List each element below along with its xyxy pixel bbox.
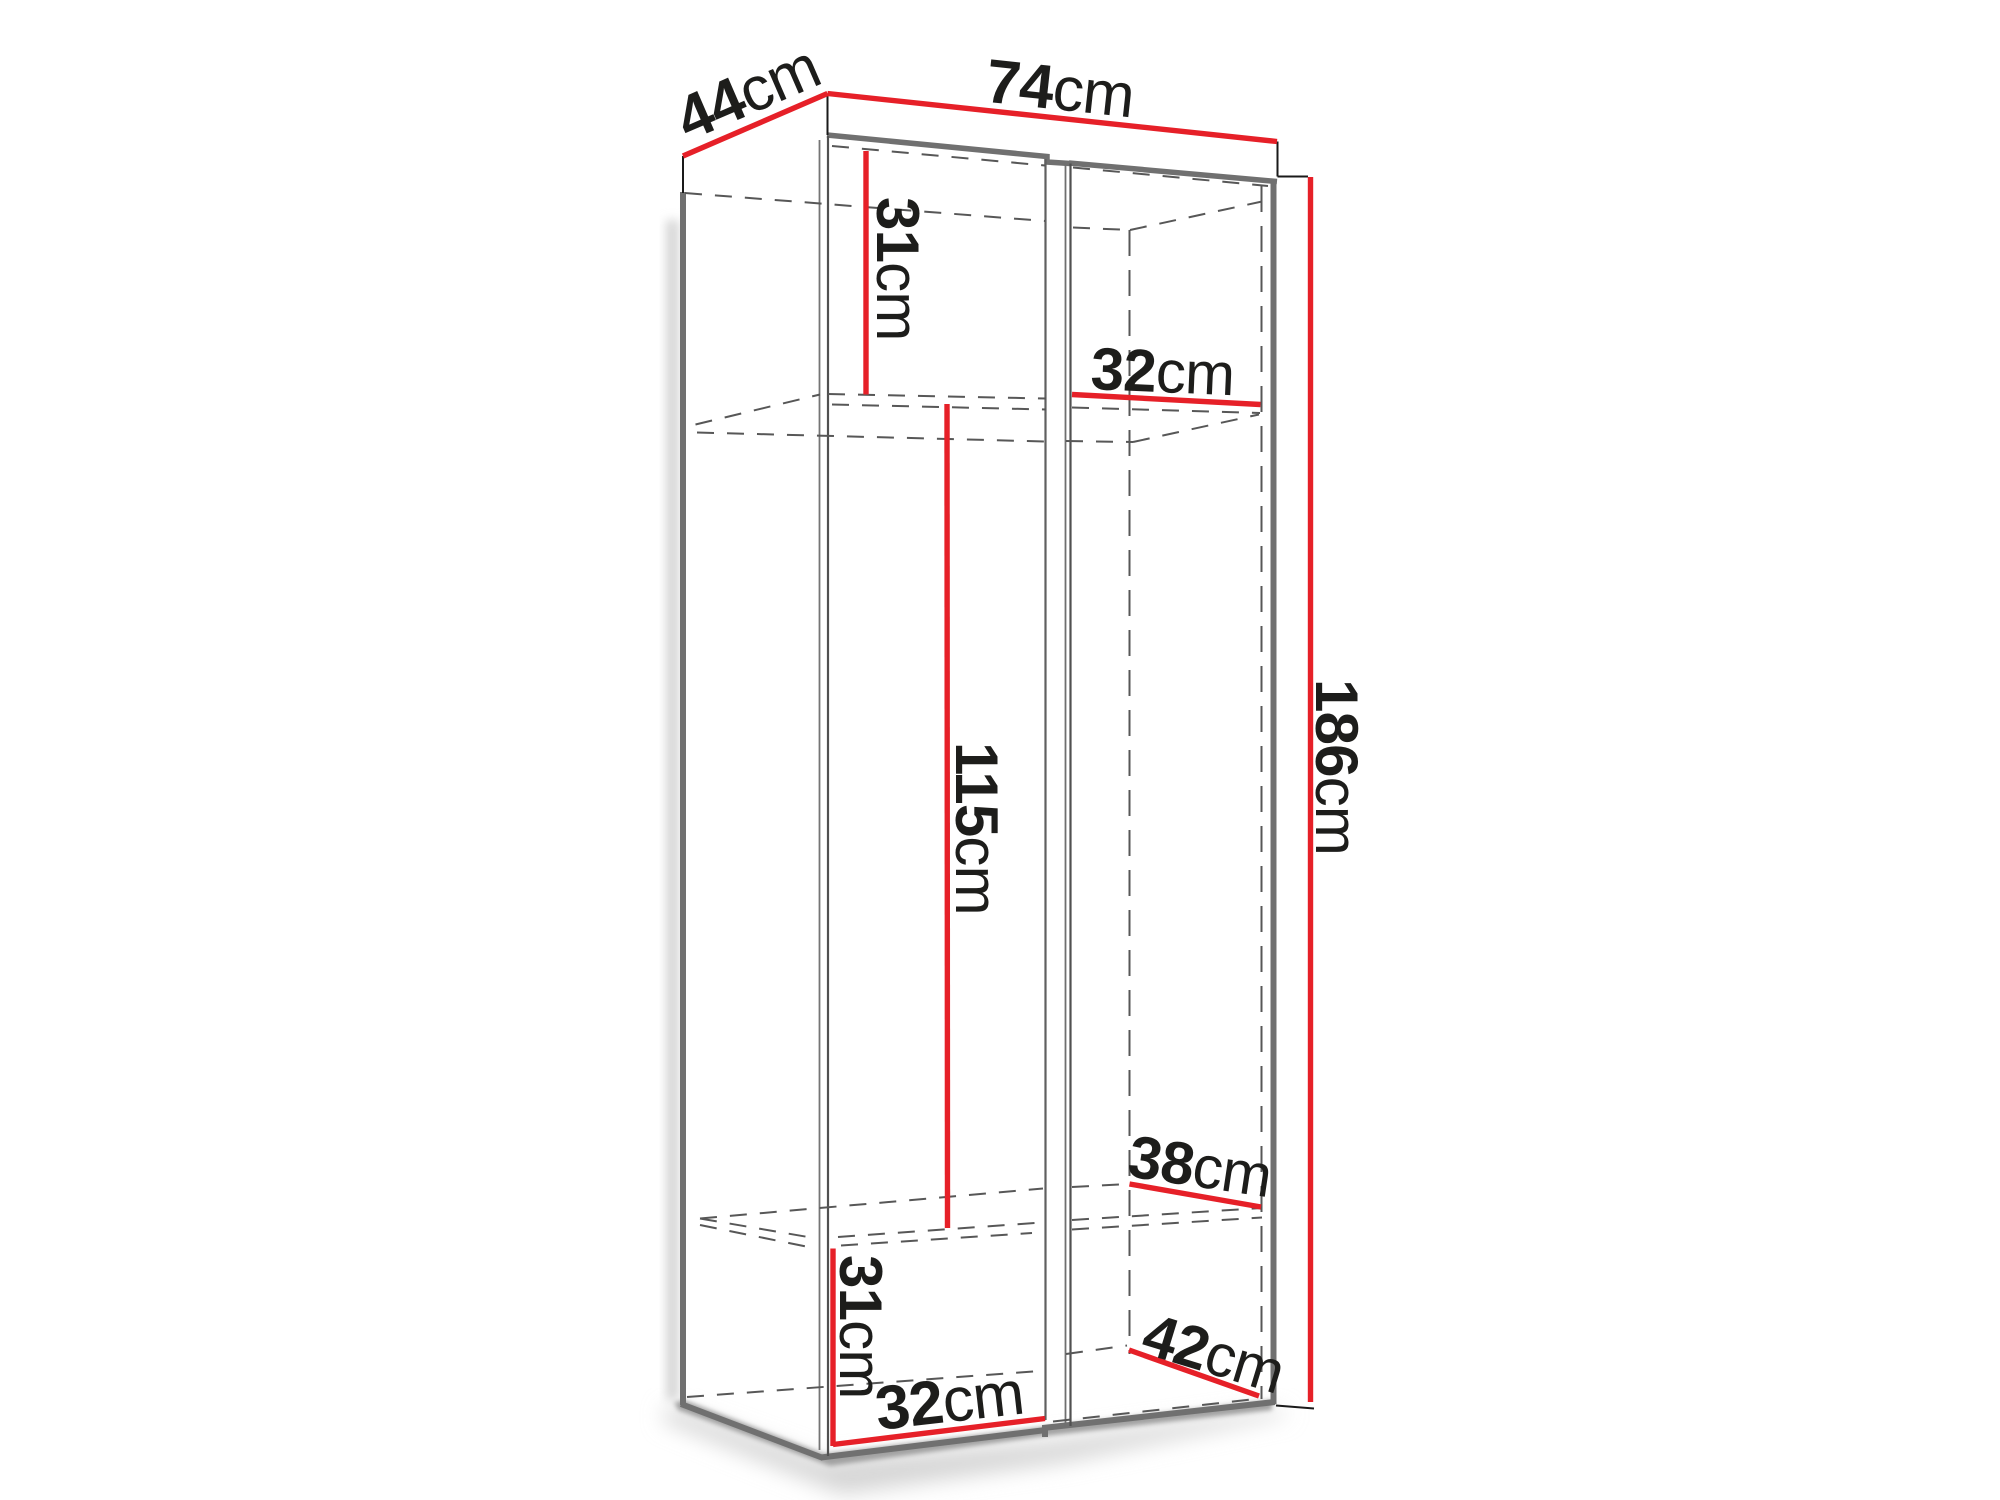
svg-text:186cm: 186cm xyxy=(1303,679,1370,855)
svg-text:115cm: 115cm xyxy=(943,742,1010,915)
svg-text:31cm: 31cm xyxy=(864,197,931,341)
svg-text:32cm: 32cm xyxy=(1089,335,1235,408)
